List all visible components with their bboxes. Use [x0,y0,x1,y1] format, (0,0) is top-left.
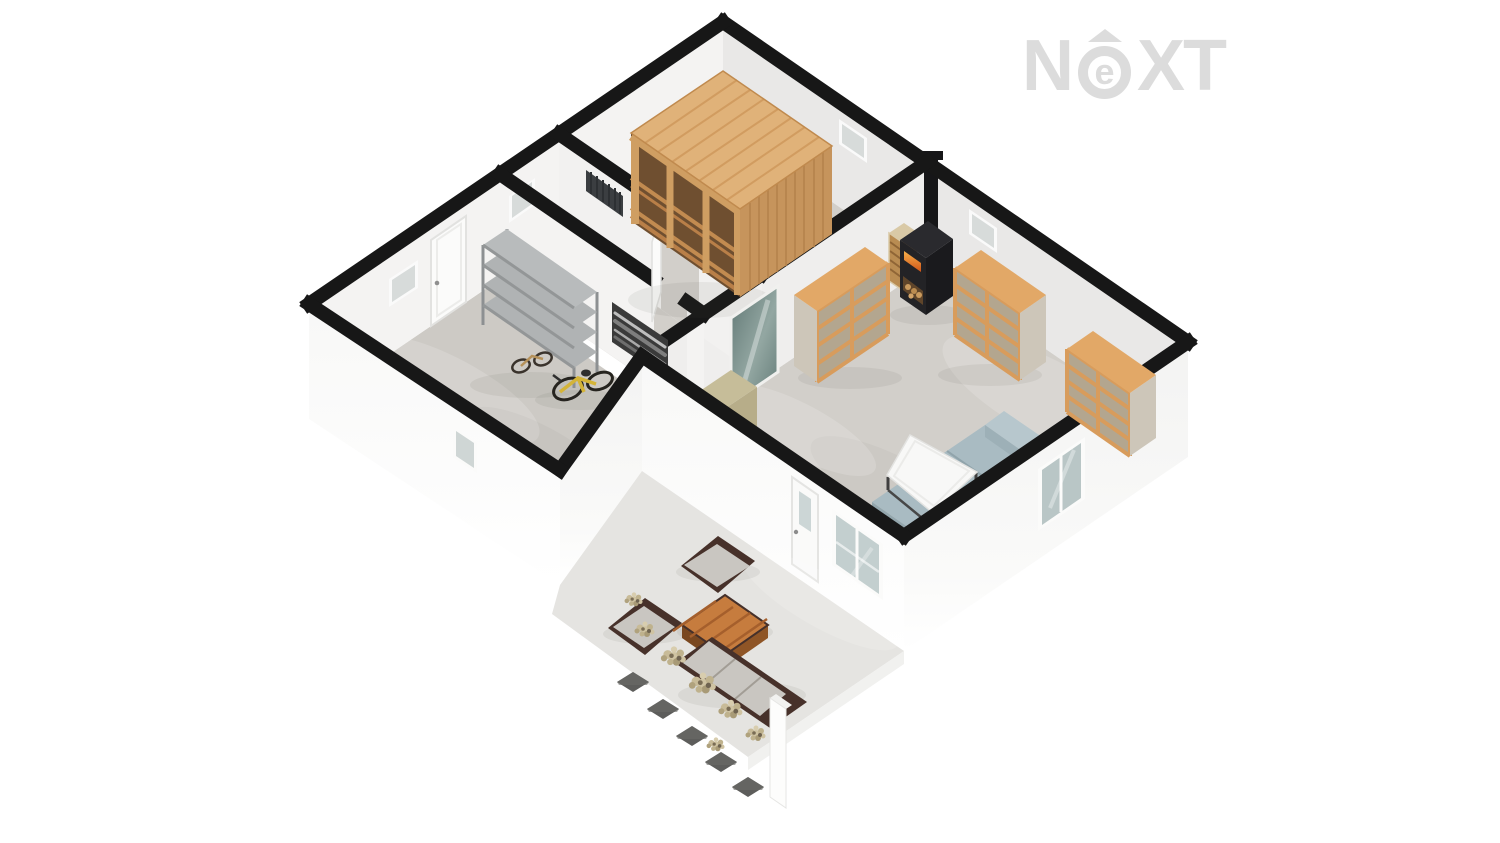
wood-stove [900,221,953,315]
logo-ring-icon: e [1078,46,1131,99]
door-handle-icon [794,530,798,534]
next-logo: N e XT [1022,34,1225,99]
logo-letter-n: N [1022,34,1072,98]
door-handle-icon [435,281,440,286]
logo-letters-xt: XT [1137,34,1225,98]
floorplan-3d-screenshot: N e XT [0,0,1500,843]
logo-letter-e: e [1094,54,1114,90]
caret-up-icon [1088,29,1122,42]
floorplan-3d-render [0,0,1500,843]
